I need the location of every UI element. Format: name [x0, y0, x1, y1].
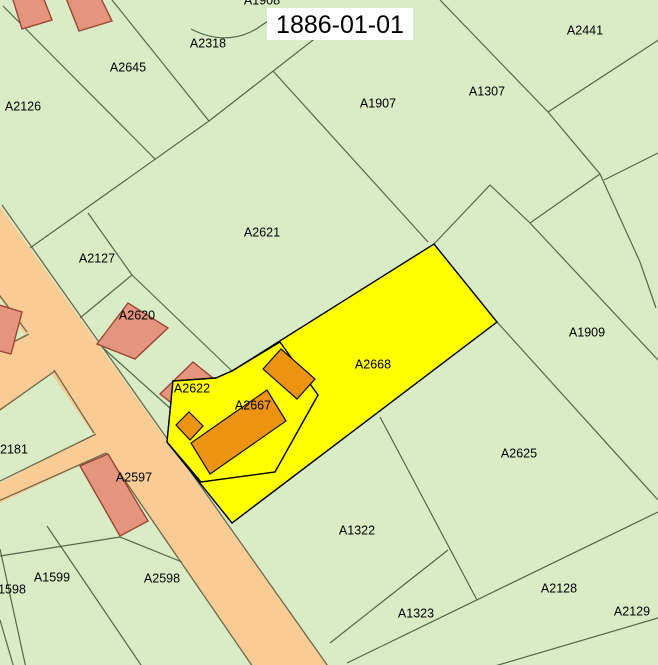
parcel-label-a2597: A2597 [116, 470, 152, 484]
parcel-label-a1909: A1909 [569, 325, 605, 339]
parcel-label-a2126: A2126 [5, 99, 41, 113]
parcel-label-a1322: A1322 [339, 523, 375, 537]
parcel-label-a1907: A1907 [360, 96, 396, 110]
parcel-label-a1598: 1598 [0, 582, 26, 596]
parcel-label-a2128: A2128 [541, 581, 577, 595]
cadastral-map-view: A1908A2318A2645A2126A2441A1307A1907A2621… [0, 0, 658, 665]
cadastral-map: A1908A2318A2645A2126A2441A1307A1907A2621… [0, 0, 658, 665]
parcel-label-a1599: A1599 [34, 570, 70, 584]
parcel-label-a2129: A2129 [614, 604, 650, 618]
parcel-label-a2620: A2620 [119, 308, 155, 322]
parcel-label-a2667: A2667 [235, 398, 271, 412]
parcel-label-a2318: A2318 [190, 36, 226, 50]
parcel-label-a2625: A2625 [501, 446, 537, 460]
map-title: 1886-01-01 [276, 11, 404, 39]
parcel-label-a2181: 2181 [0, 442, 28, 456]
parcel-label-a1323: A1323 [398, 606, 434, 620]
map-title-box: 1886-01-01 [267, 8, 413, 40]
parcel-label-a2441: A2441 [567, 23, 603, 37]
parcel-label-a2621: A2621 [244, 225, 280, 239]
parcel-label-a2622: A2622 [174, 381, 210, 395]
parcel-label-a2598: A2598 [144, 571, 180, 585]
parcel-label-a2668: A2668 [355, 357, 391, 371]
parcel-label-a1307: A1307 [469, 84, 505, 98]
parcel-label-a1908: A1908 [244, 0, 280, 7]
parcel-label-a2127: A2127 [79, 251, 115, 265]
parcel-label-a2645: A2645 [110, 60, 146, 74]
